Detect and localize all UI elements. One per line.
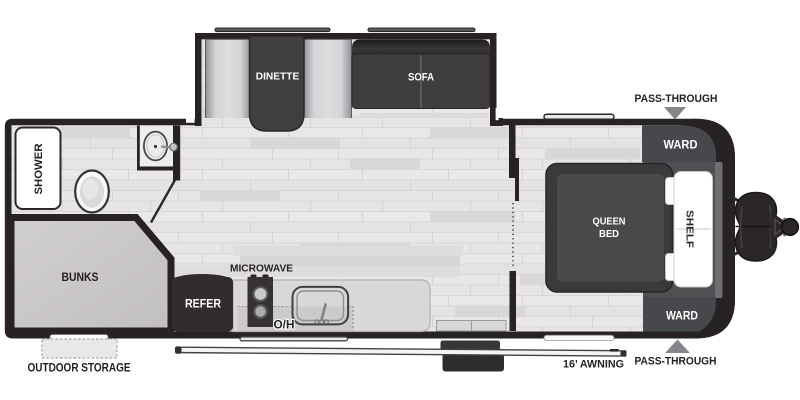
- svg-text:QUEEN: QUEEN: [593, 216, 626, 228]
- svg-text:PASS-THROUGH: PASS-THROUGH: [635, 93, 718, 105]
- svg-text:BED: BED: [599, 228, 619, 240]
- svg-text:DINETTE: DINETTE: [256, 71, 300, 83]
- svg-text:SHELF: SHELF: [684, 210, 696, 249]
- svg-text:OUTDOOR STORAGE: OUTDOOR STORAGE: [28, 363, 131, 375]
- svg-text:PASS-THROUGH: PASS-THROUGH: [635, 356, 717, 368]
- svg-text:WARD: WARD: [666, 311, 698, 323]
- svg-text:WARD: WARD: [664, 140, 698, 152]
- svg-text:BUNKS: BUNKS: [62, 272, 99, 284]
- svg-text:SHOWER: SHOWER: [33, 143, 45, 194]
- svg-text:O/H: O/H: [274, 318, 295, 332]
- svg-text:REFER: REFER: [185, 299, 222, 311]
- svg-text:MICROWAVE: MICROWAVE: [230, 263, 293, 275]
- svg-text:SOFA: SOFA: [408, 72, 434, 84]
- svg-text:16’ AWNING: 16’ AWNING: [563, 359, 624, 371]
